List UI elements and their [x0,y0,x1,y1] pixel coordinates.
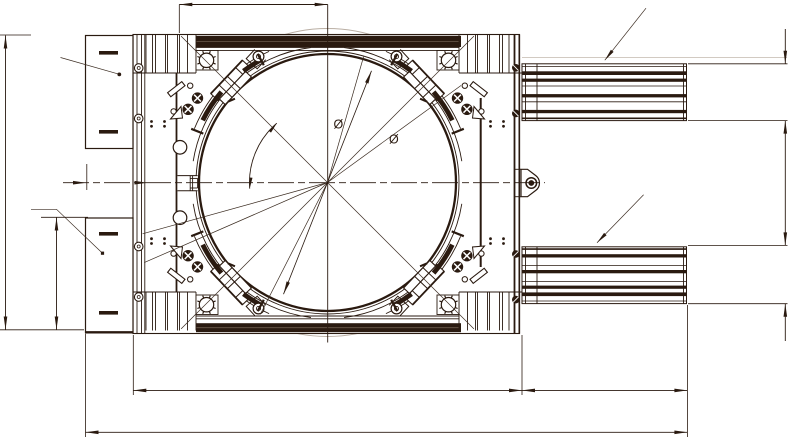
svg-text:Ø: Ø [334,118,344,132]
svg-text:Ø: Ø [389,133,399,147]
